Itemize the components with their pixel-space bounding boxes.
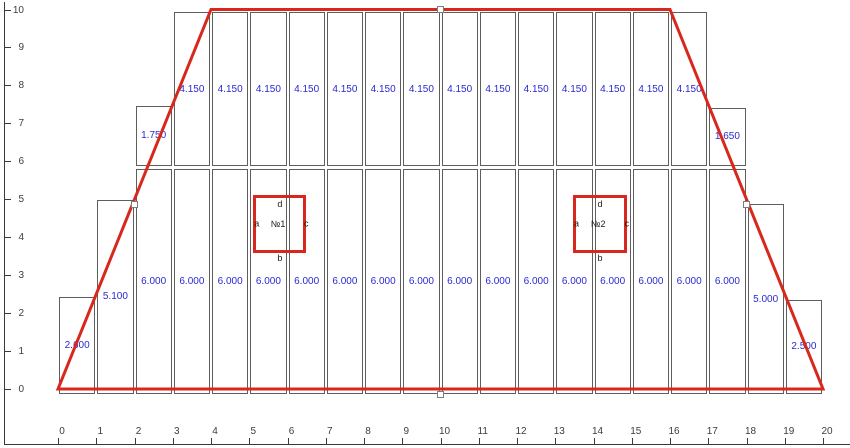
x-tick [402,438,403,444]
x-tick-label: 11 [472,426,494,437]
y-tick-label: 6 [2,156,24,167]
x-tick-label: 2 [128,426,150,437]
y-tick-label: 0 [2,384,24,395]
x-tick [747,438,748,444]
y-tick-label: 7 [2,118,24,129]
x-tick [785,438,786,444]
opening-number-label: №1 [271,219,286,229]
x-tick-label: 14 [587,426,609,437]
envelope-outline[interactable] [58,10,823,390]
x-tick [58,438,59,444]
selection-handle[interactable] [743,201,750,208]
x-tick-label: 9 [395,426,417,437]
x-tick [326,438,327,444]
opening-edge-letter-d: d [597,200,602,209]
x-tick-label: 0 [51,426,73,437]
y-tick-label: 8 [2,80,24,91]
y-tick-label: 9 [2,42,24,53]
opening-edge-letter-c: c [304,219,309,228]
y-tick-label: 4 [2,232,24,243]
x-tick-label: 10 [434,426,456,437]
opening-edge-letter-b: b [597,254,602,263]
x-tick [632,438,633,444]
envelope-layer [0,0,850,448]
x-tick-label: 17 [701,426,723,437]
x-tick-label: 8 [357,426,379,437]
x-tick-label: 19 [778,426,800,437]
x-tick-label: 12 [510,426,532,437]
x-tick-label: 16 [663,426,685,437]
x-tick-label: 5 [242,426,264,437]
x-tick-label: 13 [548,426,570,437]
x-tick [211,438,212,444]
opening-number-label: №2 [591,219,606,229]
opening-edge-letter-d: d [277,200,282,209]
x-tick [479,438,480,444]
x-tick [135,438,136,444]
opening-edge-letter-c: c [625,219,630,228]
opening-edge-letter-a: a [574,219,579,228]
x-tick-label: 18 [740,426,762,437]
opening-edge-letter-b: b [277,254,282,263]
x-tick [96,438,97,444]
x-tick [708,438,709,444]
x-tick [173,438,174,444]
x-tick [670,438,671,444]
x-tick [823,438,824,444]
x-tick [441,438,442,444]
opening-rect[interactable]: №2dbac [573,195,627,252]
opening-rect[interactable]: №1dbac [253,195,306,252]
x-tick [594,438,595,444]
selection-handle[interactable] [437,6,444,13]
x-tick-label: 1 [89,426,111,437]
x-tick [249,438,250,444]
x-axis-line [4,444,850,445]
selection-handle[interactable] [131,201,138,208]
x-tick-label: 6 [281,426,303,437]
x-tick-label: 7 [319,426,341,437]
x-tick [517,438,518,444]
x-tick [555,438,556,444]
x-tick-label: 3 [166,426,188,437]
x-tick [364,438,365,444]
drawing-canvas: 2.6005.1006.0006.0006.0006.0006.0006.000… [0,0,850,448]
y-axis-line [4,2,5,445]
x-tick-label: 20 [816,426,838,437]
x-tick-label: 4 [204,426,226,437]
y-tick-label: 5 [2,194,24,205]
opening-edge-letter-a: a [254,219,259,228]
selection-handle[interactable] [437,391,444,398]
y-tick-label: 2 [2,308,24,319]
y-tick-label: 10 [2,5,24,16]
x-tick-label: 15 [625,426,647,437]
x-tick [288,438,289,444]
y-tick-label: 3 [2,270,24,281]
y-tick-label: 1 [2,346,24,357]
